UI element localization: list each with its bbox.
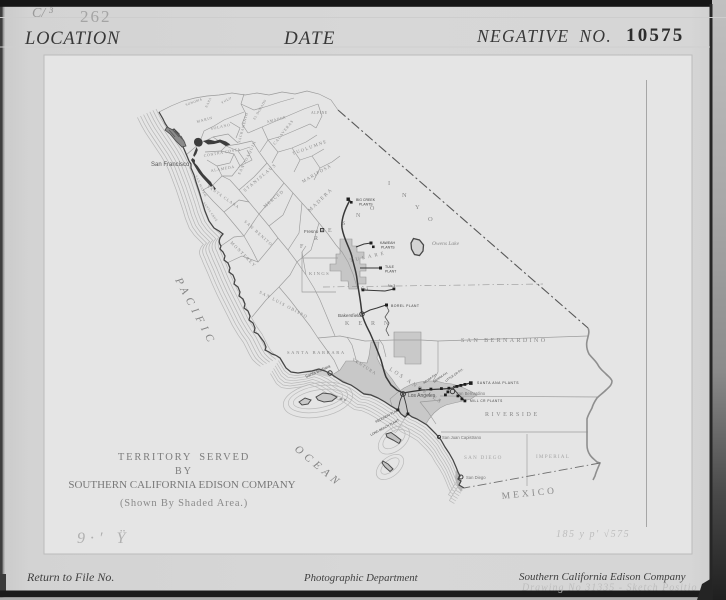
svg-text:San Juan Capistrano: San Juan Capistrano: [442, 435, 482, 440]
svg-text:San Francisco: San Francisco: [151, 162, 190, 168]
svg-text:Bakersfield: Bakersfield: [338, 313, 361, 318]
svg-text:DATE: DATE: [283, 28, 336, 49]
svg-text:SANTA ANA PLANTS: SANTA ANA PLANTS: [477, 381, 519, 385]
svg-text:TERRITORY SERVED: TERRITORY SERVED: [118, 452, 250, 463]
svg-text:IMPERIAL: IMPERIAL: [536, 454, 570, 460]
svg-text:O: O: [428, 216, 433, 223]
svg-text:SOUTHERN CALIFORNIA EDISON COM: SOUTHERN CALIFORNIA EDISON COMPANY: [68, 479, 295, 491]
svg-text:KAWEAH: KAWEAH: [380, 241, 396, 245]
svg-text:LOCATION: LOCATION: [24, 29, 121, 49]
svg-text:Drawing No 31335 - Sketch Posi: Drawing No 31335 - Sketch Positio: [521, 583, 698, 594]
svg-text:C/ ³: C/ ³: [32, 6, 54, 21]
svg-text:SAN DIEGO: SAN DIEGO: [464, 455, 503, 461]
svg-text:BOREL PLANT: BOREL PLANT: [391, 304, 420, 308]
svg-text:SANTA BARBARA: SANTA BARBARA: [287, 350, 346, 355]
svg-text:Y: Y: [415, 204, 420, 211]
svg-text:Southern California Edison: Southern California Edison Company: [519, 571, 686, 583]
svg-text:(Shown By Shaded Area.): (Shown By Shaded Area.): [120, 498, 248, 509]
svg-text:Return to File No.: Return to File No.: [26, 570, 114, 584]
svg-text:KINGS: KINGS: [309, 271, 330, 276]
svg-text:No.1: No.1: [361, 287, 368, 291]
svg-text:PLANTS: PLANTS: [381, 246, 395, 250]
svg-text:E: E: [328, 228, 332, 234]
svg-text:10575: 10575: [626, 25, 685, 46]
svg-text:N: N: [402, 192, 407, 199]
svg-text:Owens Lake: Owens Lake: [432, 241, 460, 247]
svg-text:S: S: [342, 221, 345, 227]
svg-text:9·′ Ÿ: 9·′ Ÿ: [77, 529, 130, 547]
svg-text:Photographic Department: Photographic Department: [303, 572, 419, 584]
svg-text:O: O: [370, 206, 375, 212]
svg-text:PLANTS: PLANTS: [359, 203, 373, 207]
svg-text:PLANT: PLANT: [385, 270, 397, 274]
svg-text:No.3: No.3: [388, 284, 395, 288]
svg-text:NEGATIVE NO.: NEGATIVE NO.: [476, 26, 612, 46]
svg-text:R: R: [314, 236, 318, 242]
svg-text:Fresno: Fresno: [304, 229, 319, 234]
svg-text:185 y p′ √575: 185 y p′ √575: [556, 529, 630, 540]
svg-text:SAN BERNARDINO: SAN BERNARDINO: [461, 338, 547, 344]
svg-text:Los Angeles: Los Angeles: [408, 393, 436, 399]
svg-text:262: 262: [80, 7, 112, 26]
svg-text:BY: BY: [175, 466, 193, 477]
svg-text:I: I: [388, 180, 390, 187]
svg-text:KERN: KERN: [345, 321, 397, 327]
svg-text:San Diego: San Diego: [466, 475, 486, 480]
svg-text:TULE: TULE: [385, 265, 395, 269]
svg-text:N: N: [356, 213, 361, 219]
svg-text:San Bernardino: San Bernardino: [456, 391, 486, 396]
svg-text:RIVERSIDE: RIVERSIDE: [485, 412, 540, 418]
svg-text:MILL CR PLANTS: MILL CR PLANTS: [470, 399, 503, 403]
svg-text:ALPINE: ALPINE: [311, 111, 328, 115]
svg-text:BIG CREEK: BIG CREEK: [356, 198, 376, 202]
